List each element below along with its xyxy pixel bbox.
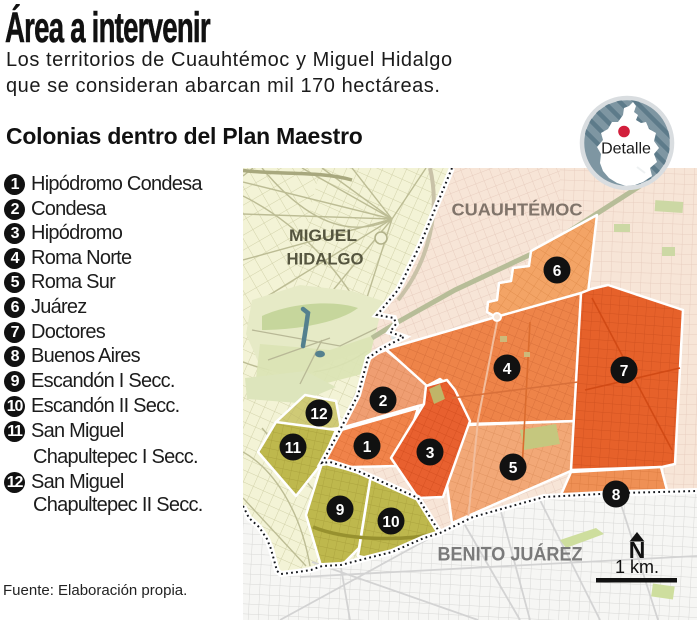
svg-text:MIGUEL: MIGUEL: [289, 226, 357, 245]
svg-text:4: 4: [503, 361, 512, 378]
svg-text:BENITO JUÁREZ: BENITO JUÁREZ: [438, 544, 583, 566]
svg-text:3: 3: [426, 445, 435, 462]
svg-text:2: 2: [379, 393, 388, 410]
svg-text:10: 10: [382, 514, 399, 531]
svg-text:9: 9: [336, 502, 345, 519]
svg-text:11: 11: [285, 440, 302, 457]
svg-text:7: 7: [620, 363, 629, 380]
svg-text:HIDALGO: HIDALGO: [287, 250, 364, 269]
svg-text:12: 12: [310, 406, 327, 423]
svg-text:1: 1: [363, 439, 372, 456]
svg-text:Detalle: Detalle: [601, 141, 651, 158]
svg-text:5: 5: [509, 460, 518, 477]
svg-text:CUAUHTÉMOC: CUAUHTÉMOC: [452, 199, 583, 220]
svg-text:8: 8: [612, 487, 621, 504]
svg-text:6: 6: [553, 263, 562, 280]
svg-text:1 km.: 1 km.: [615, 557, 659, 577]
